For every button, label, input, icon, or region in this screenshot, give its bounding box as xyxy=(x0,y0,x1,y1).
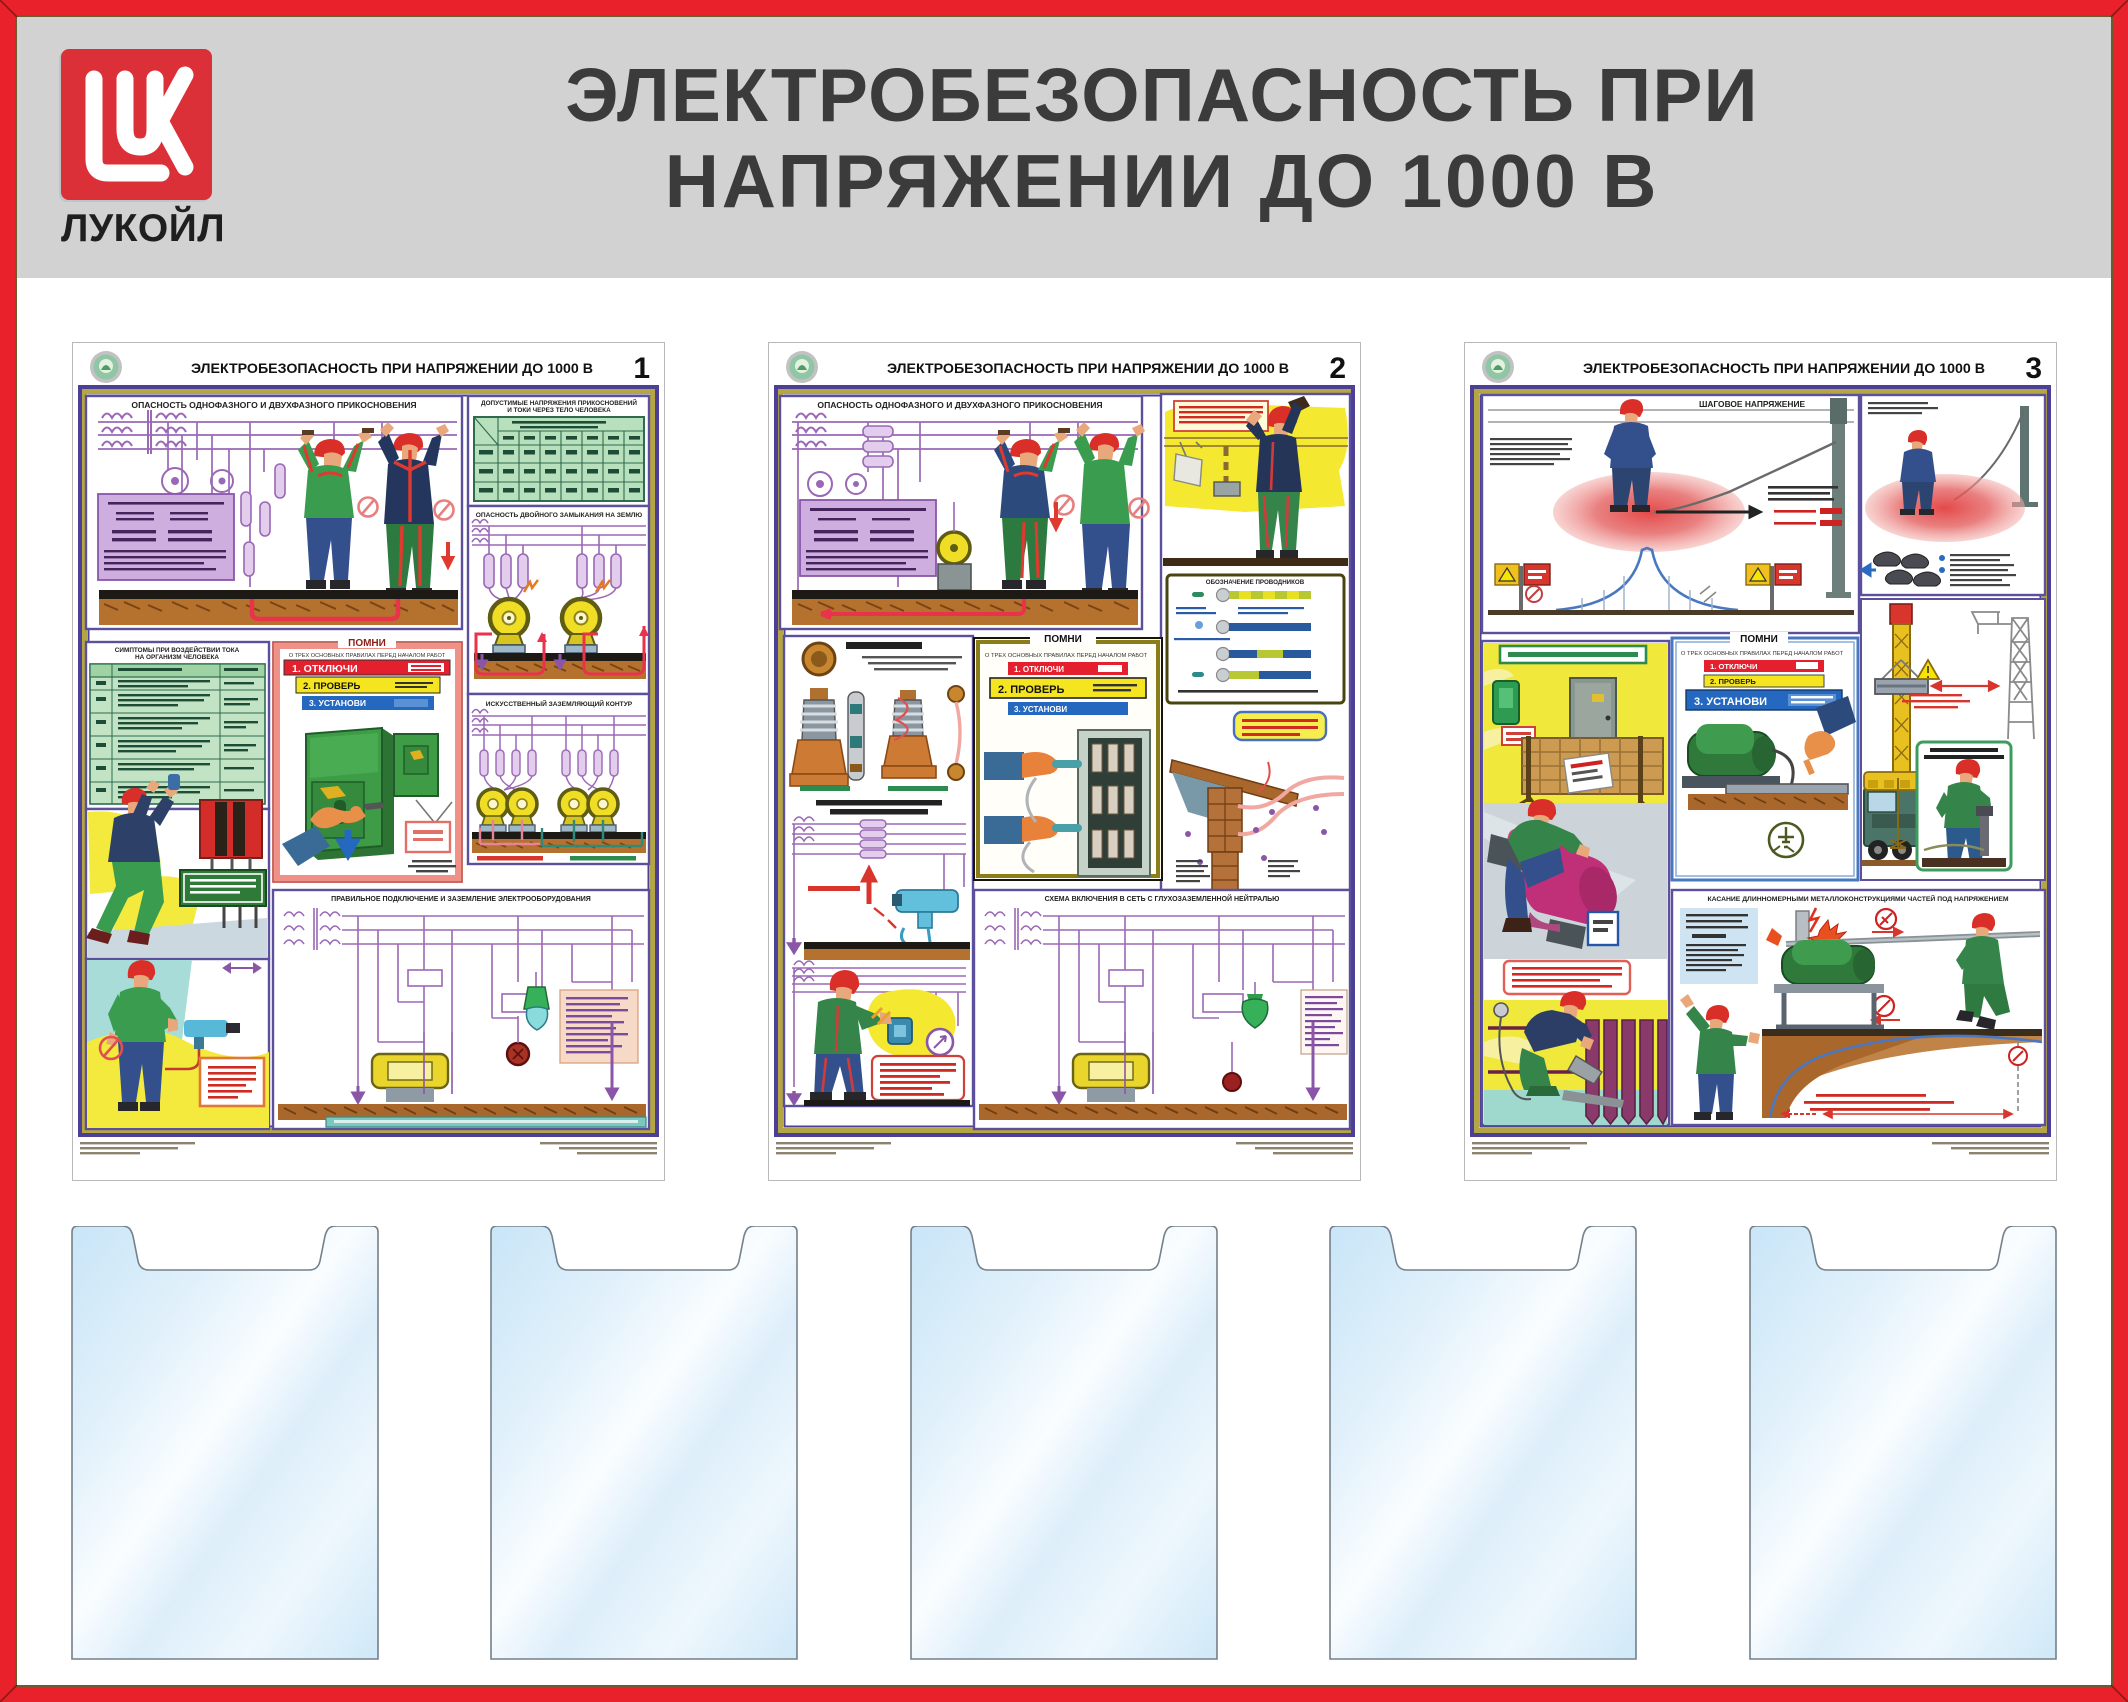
svg-text:ПОМНИ: ПОМНИ xyxy=(1740,634,1778,645)
svg-text:2. ПРОВЕРЬ: 2. ПРОВЕРЬ xyxy=(1710,677,1756,686)
svg-text:1: 1 xyxy=(633,352,650,385)
svg-text:ЭЛЕКТРОБЕЗОПАСНОСТЬ ПРИ НАПРЯЖ: ЭЛЕКТРОБЕЗОПАСНОСТЬ ПРИ НАПРЯЖЕНИИ ДО 10… xyxy=(191,361,593,377)
svg-text:ОПАСНОСТЬ ДВОЙНОГО ЗАМЫКАНИЯ Н: ОПАСНОСТЬ ДВОЙНОГО ЗАМЫКАНИЯ НА ЗЕМЛЮ xyxy=(476,510,643,519)
svg-text:1. ОТКЛЮЧИ: 1. ОТКЛЮЧИ xyxy=(1710,662,1757,671)
svg-text:ДОПУСТИМЫЕ НАПРЯЖЕНИЯ ПРИКОСНО: ДОПУСТИМЫЕ НАПРЯЖЕНИЯ ПРИКОСНОВЕНИЙ xyxy=(481,398,637,407)
svg-text:ШАГОВОЕ НАПРЯЖЕНИЕ: ШАГОВОЕ НАПРЯЖЕНИЕ xyxy=(1699,399,1806,409)
svg-text:О ТРЕХ ОСНОВНЫХ ПРАВИЛАХ ПЕРЕД: О ТРЕХ ОСНОВНЫХ ПРАВИЛАХ ПЕРЕД НАЧАЛОМ Р… xyxy=(985,653,1148,659)
svg-text:3. УСТАНОВИ: 3. УСТАНОВИ xyxy=(309,698,366,708)
svg-text:И ТОКИ ЧЕРЕЗ ТЕЛО ЧЕЛОВЕКА: И ТОКИ ЧЕРЕЗ ТЕЛО ЧЕЛОВЕКА xyxy=(507,407,611,414)
svg-text:2. ПРОВЕРЬ: 2. ПРОВЕРЬ xyxy=(998,684,1065,696)
svg-text:ОБОЗНАЧЕНИЕ ПРОВОДНИКОВ: ОБОЗНАЧЕНИЕ ПРОВОДНИКОВ xyxy=(1206,579,1305,586)
svg-text:ПОМНИ: ПОМНИ xyxy=(1044,634,1082,645)
svg-text:КАСАНИЕ ДЛИННОМЕРНЫМИ МЕТАЛЛОК: КАСАНИЕ ДЛИННОМЕРНЫМИ МЕТАЛЛОКОНСТРУКЦИЯ… xyxy=(1707,894,2008,903)
svg-text:2: 2 xyxy=(1329,352,1346,385)
svg-text:ОПАСНОСТЬ ОДНОФАЗНОГО И ДВУХФА: ОПАСНОСТЬ ОДНОФАЗНОГО И ДВУХФАЗНОГО ПРИК… xyxy=(817,400,1102,410)
svg-text:О ТРЕХ ОСНОВНЫХ ПРАВИЛАХ ПЕРЕД: О ТРЕХ ОСНОВНЫХ ПРАВИЛАХ ПЕРЕД НАЧАЛОМ Р… xyxy=(1681,651,1844,657)
svg-text:ЭЛЕКТРОБЕЗОПАСНОСТЬ ПРИ НАПРЯЖ: ЭЛЕКТРОБЕЗОПАСНОСТЬ ПРИ НАПРЯЖЕНИИ ДО 10… xyxy=(1583,361,1985,377)
svg-text:ИСКУССТВЕННЫЙ ЗАЗЕМЛЯЮЩИЙ КОНТ: ИСКУССТВЕННЫЙ ЗАЗЕМЛЯЮЩИЙ КОНТУР xyxy=(486,699,633,708)
svg-text:ПОМНИ: ПОМНИ xyxy=(348,638,386,649)
svg-text:3. УСТАНОВИ: 3. УСТАНОВИ xyxy=(1014,705,1067,714)
svg-text:СХЕМА ВКЛЮЧЕНИЯ В СЕТЬ С ГЛУХО: СХЕМА ВКЛЮЧЕНИЯ В СЕТЬ С ГЛУХОЗАЗЕМЛЕННО… xyxy=(1045,894,1280,903)
svg-text:1. ОТКЛЮЧИ: 1. ОТКЛЮЧИ xyxy=(1014,665,1064,674)
svg-text:2. ПРОВЕРЬ: 2. ПРОВЕРЬ xyxy=(303,681,361,692)
svg-text:О ТРЕХ ОСНОВНЫХ ПРАВИЛАХ ПЕРЕД: О ТРЕХ ОСНОВНЫХ ПРАВИЛАХ ПЕРЕД НАЧАЛОМ Р… xyxy=(289,653,446,659)
svg-text:3: 3 xyxy=(2025,352,2042,385)
svg-text:3. УСТАНОВИ: 3. УСТАНОВИ xyxy=(1694,696,1767,708)
svg-text:ОПАСНОСТЬ ОДНОФАЗНОГО И ДВУХФА: ОПАСНОСТЬ ОДНОФАЗНОГО И ДВУХФАЗНОГО ПРИК… xyxy=(131,400,416,410)
svg-text:1. ОТКЛЮЧИ: 1. ОТКЛЮЧИ xyxy=(292,663,358,675)
svg-text:НА ОРГАНИЗМ ЧЕЛОВЕКА: НА ОРГАНИЗМ ЧЕЛОВЕКА xyxy=(135,654,219,661)
svg-text:ЭЛЕКТРОБЕЗОПАСНОСТЬ ПРИ НАПРЯЖ: ЭЛЕКТРОБЕЗОПАСНОСТЬ ПРИ НАПРЯЖЕНИИ ДО 10… xyxy=(887,361,1289,377)
svg-text:СИМПТОМЫ ПРИ ВОЗДЕЙСТВИИ ТОКА: СИМПТОМЫ ПРИ ВОЗДЕЙСТВИИ ТОКА xyxy=(115,645,240,654)
svg-text:ПРАВИЛЬНОЕ ПОДКЛЮЧЕНИЕ И ЗАЗЕМ: ПРАВИЛЬНОЕ ПОДКЛЮЧЕНИЕ И ЗАЗЕМЛЕНИЕ ЭЛЕК… xyxy=(331,896,591,903)
